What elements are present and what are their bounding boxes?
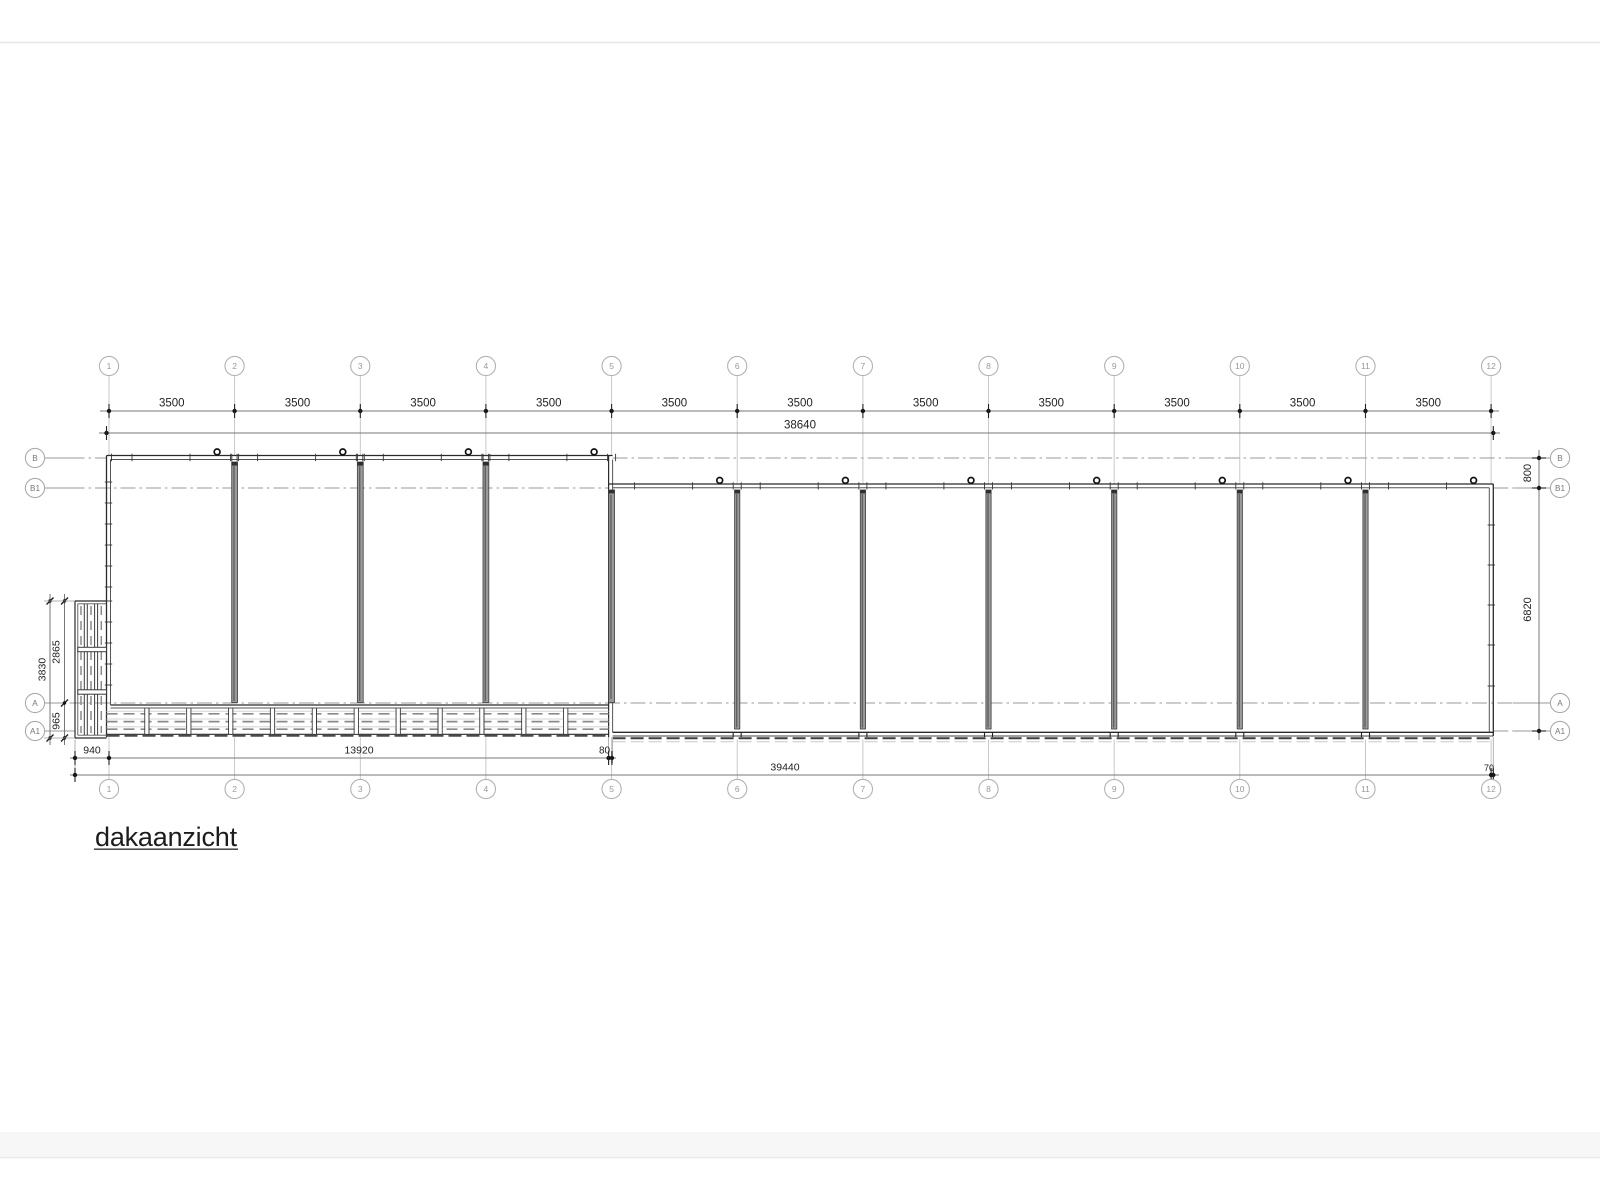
svg-text:80: 80 (599, 746, 611, 757)
svg-text:800: 800 (1522, 464, 1534, 482)
svg-text:39440: 39440 (770, 762, 799, 774)
svg-text:A1: A1 (30, 727, 40, 736)
svg-text:3500: 3500 (536, 398, 562, 410)
svg-text:A: A (32, 699, 38, 708)
svg-text:10: 10 (1235, 784, 1245, 794)
svg-text:8: 8 (986, 361, 991, 371)
svg-text:2: 2 (232, 361, 237, 371)
svg-text:2865: 2865 (51, 640, 63, 664)
svg-text:5: 5 (609, 784, 614, 794)
svg-text:10: 10 (1235, 361, 1245, 371)
svg-text:B: B (1557, 454, 1563, 463)
svg-text:A1: A1 (1555, 727, 1565, 736)
svg-text:6: 6 (735, 361, 740, 371)
svg-text:3500: 3500 (410, 398, 436, 410)
svg-text:3500: 3500 (913, 398, 939, 410)
svg-text:3: 3 (358, 361, 363, 371)
svg-text:940: 940 (83, 745, 101, 757)
svg-text:B1: B1 (1555, 484, 1565, 493)
svg-text:4: 4 (484, 784, 489, 794)
svg-text:5: 5 (609, 361, 614, 371)
svg-text:70: 70 (1484, 763, 1494, 773)
svg-text:3830: 3830 (37, 658, 49, 682)
svg-text:B: B (32, 454, 38, 463)
svg-text:7: 7 (861, 784, 866, 794)
svg-text:3500: 3500 (1164, 398, 1190, 410)
svg-text:13920: 13920 (344, 745, 373, 757)
svg-text:38640: 38640 (784, 420, 816, 432)
svg-text:3500: 3500 (1290, 398, 1316, 410)
svg-text:7: 7 (861, 361, 866, 371)
svg-text:2: 2 (232, 784, 237, 794)
svg-text:4: 4 (484, 361, 489, 371)
svg-text:11: 11 (1361, 784, 1370, 794)
svg-text:3500: 3500 (662, 398, 688, 410)
svg-text:6: 6 (735, 784, 740, 794)
svg-text:3: 3 (358, 784, 363, 794)
svg-text:3500: 3500 (787, 398, 813, 410)
svg-text:6820: 6820 (1522, 597, 1534, 621)
svg-text:8: 8 (986, 784, 991, 794)
svg-text:dakaanzicht: dakaanzicht (95, 822, 238, 852)
svg-text:3500: 3500 (159, 398, 185, 410)
svg-text:965: 965 (51, 712, 63, 730)
svg-text:1: 1 (107, 784, 112, 794)
svg-text:12: 12 (1486, 361, 1496, 371)
svg-text:3500: 3500 (1039, 398, 1065, 410)
svg-text:9: 9 (1112, 361, 1117, 371)
svg-text:11: 11 (1361, 361, 1370, 371)
svg-text:A: A (1557, 699, 1563, 708)
svg-text:9: 9 (1112, 784, 1117, 794)
svg-text:B1: B1 (30, 484, 40, 493)
svg-text:1: 1 (107, 361, 112, 371)
svg-text:3500: 3500 (285, 398, 311, 410)
svg-text:12: 12 (1486, 784, 1496, 794)
svg-text:3500: 3500 (1416, 398, 1442, 410)
